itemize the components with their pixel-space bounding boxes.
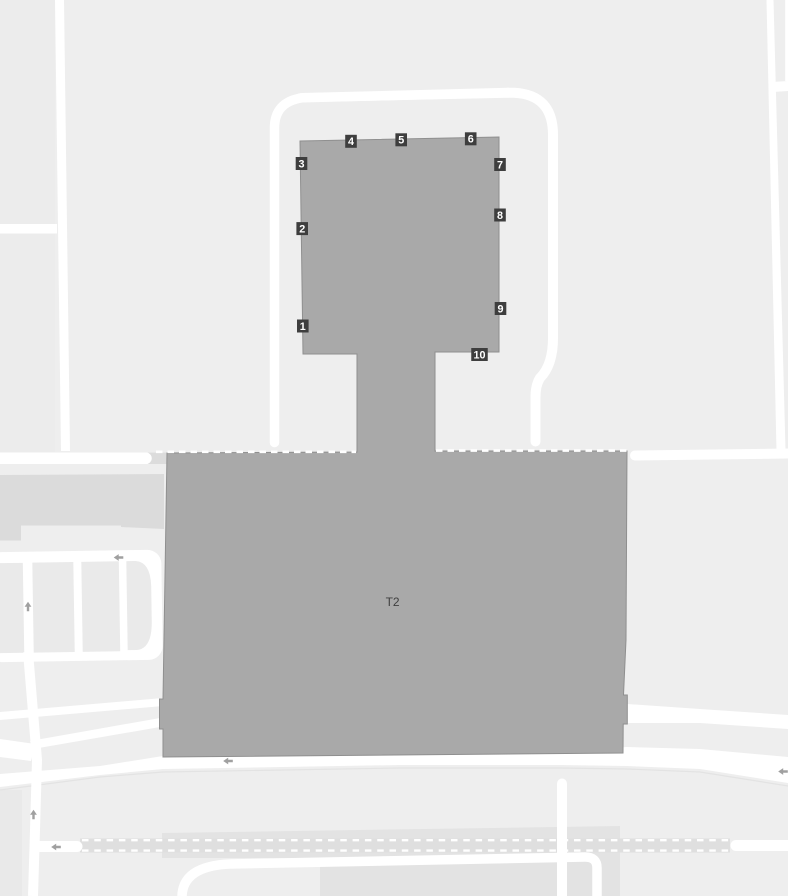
svg-text:3: 3 [298, 158, 304, 170]
svg-text:7: 7 [497, 159, 503, 171]
svg-text:8: 8 [497, 210, 503, 222]
svg-text:1: 1 [300, 321, 306, 333]
svg-text:4: 4 [348, 136, 354, 148]
svg-text:T2: T2 [386, 595, 400, 609]
svg-text:5: 5 [398, 135, 404, 147]
svg-text:10: 10 [473, 349, 485, 361]
svg-text:9: 9 [497, 303, 503, 315]
svg-text:6: 6 [468, 134, 474, 146]
svg-text:2: 2 [299, 224, 305, 236]
